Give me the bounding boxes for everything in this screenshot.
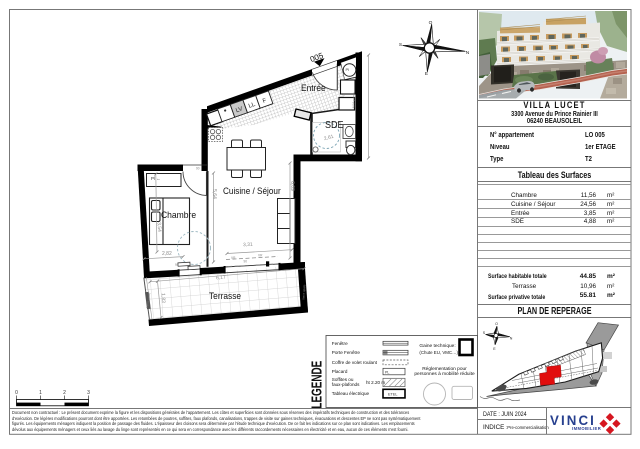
svg-text:90: 90 [244, 260, 248, 264]
svg-text:1: 1 [39, 390, 42, 396]
svg-text:90: 90 [175, 263, 179, 267]
svg-text:2: 2 [63, 390, 66, 396]
svg-text:S: S [399, 42, 402, 48]
svg-text:S: S [483, 331, 486, 335]
svg-text:VR: VR [258, 254, 263, 258]
svg-text:0: 0 [15, 390, 18, 396]
svg-text:3: 3 [87, 390, 90, 396]
svg-text:ETEL: ETEL [388, 392, 398, 396]
svg-text:N: N [466, 50, 470, 56]
svg-text:M.M gaines: M.M gaines [352, 92, 356, 108]
svg-text:N: N [510, 337, 513, 341]
svg-text:90: 90 [196, 167, 200, 171]
svg-text:O: O [429, 20, 433, 26]
svg-text:PL: PL [385, 370, 389, 374]
svg-text:Verre opale: Verre opale [302, 284, 307, 300]
svg-text:VR: VR [231, 256, 236, 260]
svg-text:E: E [493, 347, 496, 351]
svg-text:O: O [495, 322, 498, 326]
svg-text:E: E [425, 71, 428, 77]
